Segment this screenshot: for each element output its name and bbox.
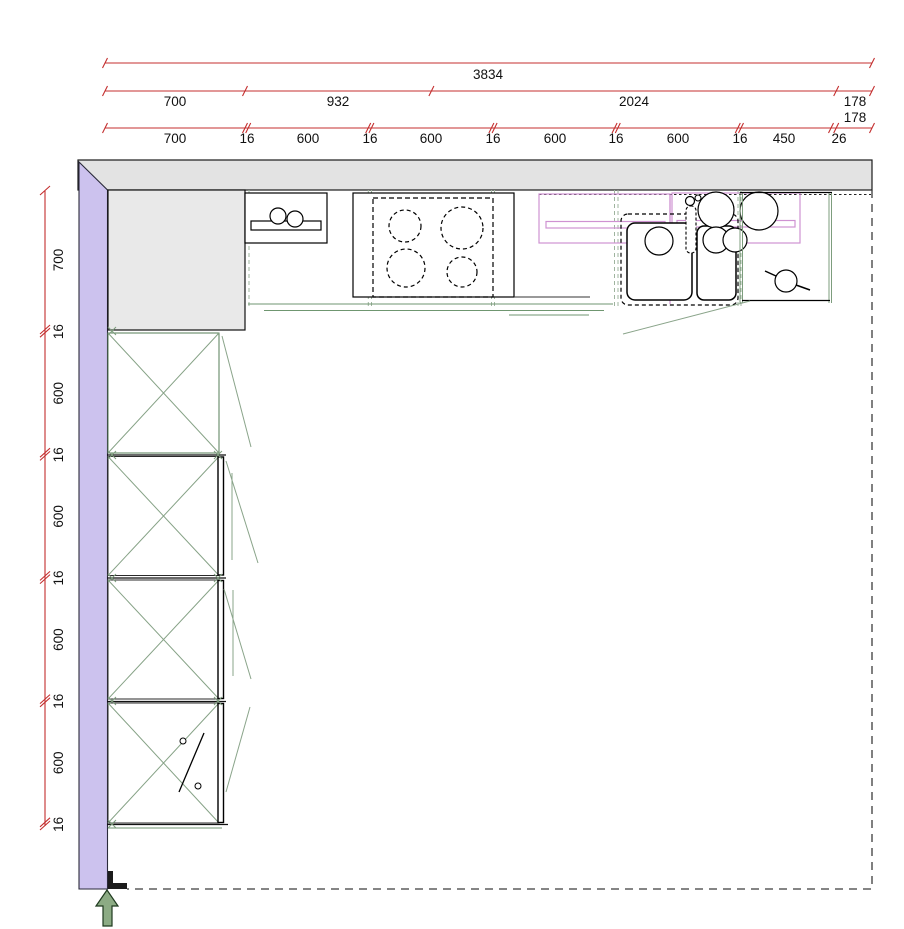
dim-label-section-3: 178 xyxy=(844,94,867,109)
kitchen-plan-canvas: 3834 700 932 2024 178 178 700 16 600 16 … xyxy=(0,0,904,929)
base-cabinet-4-door xyxy=(218,704,224,823)
top-cabinet-run xyxy=(108,190,871,334)
pot-circle-2 xyxy=(740,192,778,230)
dim-label-left-8: 600 xyxy=(51,752,66,775)
dim-label-left-1: 16 xyxy=(51,324,66,339)
door-swing-line-2 xyxy=(226,461,258,563)
door-swing-line-4 xyxy=(226,707,250,792)
dim-label-detail-9: 16 xyxy=(732,131,747,146)
valve-line-upper xyxy=(765,271,776,276)
cabinet-4-knob-1 xyxy=(180,738,186,744)
base-cabinet-4-cross xyxy=(108,703,219,823)
door-swing-line-sink xyxy=(623,301,750,334)
base-cabinet-3-door xyxy=(218,581,224,699)
dim-label-left-4: 600 xyxy=(51,505,66,528)
door-swing-line-1 xyxy=(222,336,251,447)
left-wall xyxy=(79,162,108,889)
dim-label-left-6: 600 xyxy=(51,628,66,651)
base-cabinet-2-door xyxy=(218,457,224,575)
dim-label-detail-4: 600 xyxy=(420,131,443,146)
valve-circle xyxy=(775,270,797,292)
dim-label-detail-11: 26 xyxy=(831,131,846,146)
cooktop-cabinet xyxy=(353,193,514,297)
dim-label-detail-2: 600 xyxy=(297,131,320,146)
dim-label-detail-6: 600 xyxy=(544,131,567,146)
sink-drain-circle xyxy=(645,227,673,255)
dim-label-left-0: 700 xyxy=(51,249,66,272)
dim-label-section-1: 932 xyxy=(327,94,350,109)
dim-label-section-0: 700 xyxy=(164,94,187,109)
floorplan-drawing: 3834 700 932 2024 178 178 700 16 600 16 … xyxy=(0,0,904,929)
dim-label-detail-10: 450 xyxy=(773,131,796,146)
pot-circle-1 xyxy=(698,192,734,228)
dim-label-overflow: 178 xyxy=(844,110,867,125)
dim-label-left-7: 16 xyxy=(51,694,66,709)
valve-line-lower xyxy=(796,285,810,290)
dim-label-overall: 3834 xyxy=(473,67,504,82)
dimension-left xyxy=(40,186,50,830)
dimension-left-labels: 700 16 600 16 600 16 600 16 600 16 xyxy=(51,249,66,832)
faucet-handle xyxy=(686,197,695,206)
dim-label-detail-7: 16 xyxy=(608,131,623,146)
dim-label-detail-0: 700 xyxy=(164,131,187,146)
countertop-edges xyxy=(248,304,613,315)
dim-label-left-2: 600 xyxy=(51,382,66,405)
corner-cabinet xyxy=(108,190,245,330)
faucet-stem xyxy=(686,206,696,253)
faucet-spout xyxy=(695,195,701,201)
left-cabinet-run xyxy=(107,327,258,828)
dim-label-detail-8: 600 xyxy=(667,131,690,146)
pot-circle-4 xyxy=(723,228,747,252)
dim-label-left-5: 16 xyxy=(51,570,66,585)
dim-label-detail-1: 16 xyxy=(239,131,254,146)
cooktop-cabinet-box xyxy=(353,193,514,297)
shelf-item-2 xyxy=(287,211,303,227)
base-cabinet-3-cross xyxy=(108,580,219,699)
base-cabinet-2-cross xyxy=(108,457,219,576)
door-swing-lines xyxy=(222,336,258,792)
cabinet-4-knob-2 xyxy=(195,783,201,789)
dim-label-detail-5: 16 xyxy=(485,131,500,146)
top-wall xyxy=(78,160,872,190)
shelf-bar xyxy=(251,221,321,230)
corner-l-marker xyxy=(108,871,127,889)
shelf-item-1 xyxy=(270,208,286,224)
dim-label-left-9: 16 xyxy=(51,817,66,832)
door-swing-line-3 xyxy=(224,589,251,679)
entry-arrow-icon xyxy=(96,890,118,926)
dim-label-section-2: 2024 xyxy=(619,94,650,109)
dim-label-left-3: 16 xyxy=(51,447,66,462)
dimension-top-labels: 3834 700 932 2024 178 178 700 16 600 16 … xyxy=(164,67,867,146)
dim-label-detail-3: 16 xyxy=(362,131,377,146)
appliance-shelf-cabinet xyxy=(245,193,327,243)
base-cabinet-1-cross xyxy=(108,333,219,453)
sink-unit xyxy=(621,192,778,305)
